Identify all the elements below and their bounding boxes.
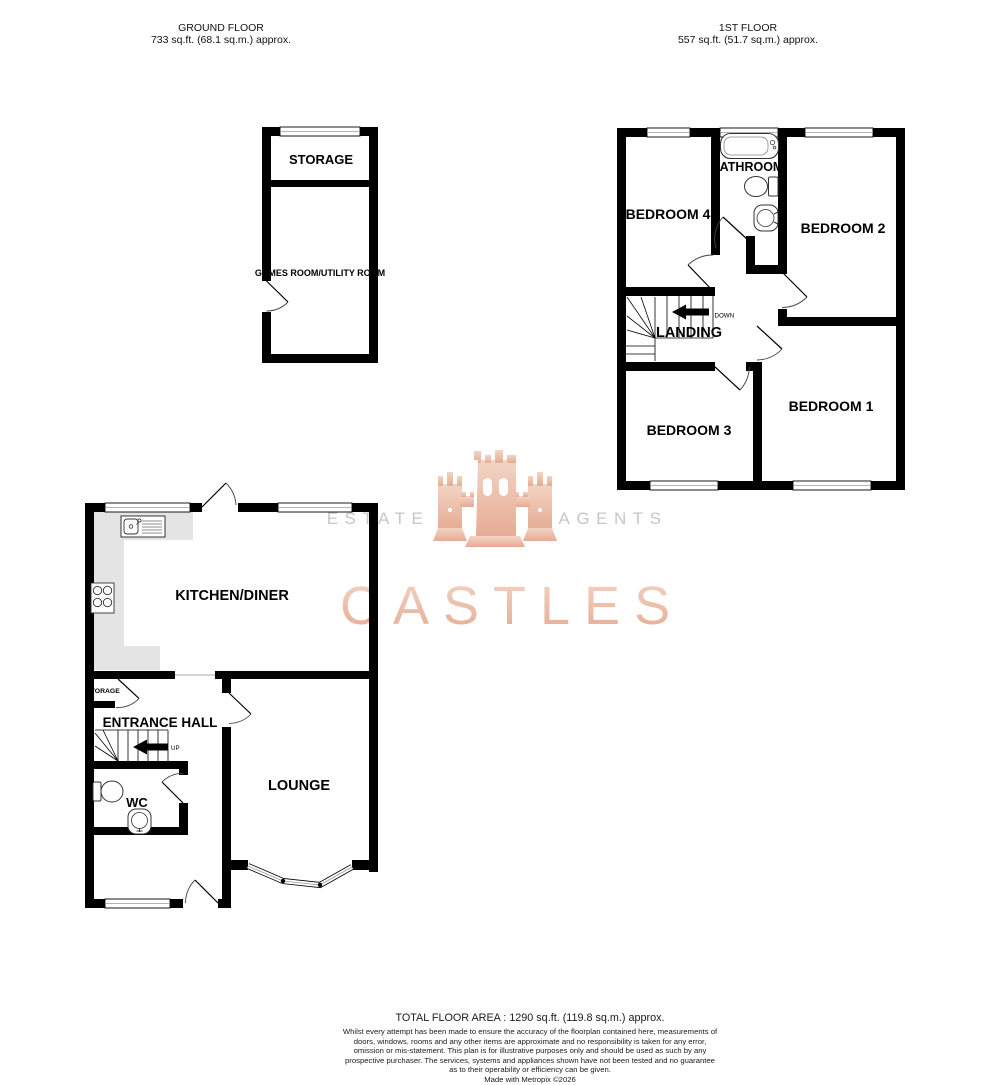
total-floor-area: TOTAL FLOOR AREA : 1290 sq.ft. (119.8 sq… — [330, 1012, 730, 1024]
bedroom1-door — [757, 326, 782, 360]
down-label: DOWN — [715, 313, 735, 320]
watermark-agents-text: AGENTS — [559, 509, 668, 528]
lounge-door — [229, 693, 251, 723]
entrance-hall-label: ENTRANCE HALL — [103, 715, 218, 730]
basin-icon-wc — [128, 809, 151, 834]
first-floor-plan: DOWN BEDROOM 4 BATHROOM BEDROOM 2 LANDIN… — [617, 128, 905, 490]
bedroom2-door — [782, 272, 807, 307]
toilet-icon-bathroom — [745, 177, 779, 197]
toilet-icon-wc — [93, 781, 123, 802]
bedroom3-label: BEDROOM 3 — [647, 422, 732, 438]
hall-storage-label: STORAGE — [86, 688, 120, 695]
landing-label: LANDING — [656, 325, 722, 341]
bedroom3-door — [714, 366, 749, 390]
games-room-label: GAMES ROOM/UTILITY ROOM — [255, 268, 385, 278]
bedroom4-door — [688, 255, 713, 291]
lounge-label: LOUNGE — [268, 778, 330, 794]
watermark: ESTATE AGENTS CASTLES — [327, 450, 684, 636]
disclaimer-text: Whilst every attempt has been made to en… — [341, 1027, 719, 1075]
outbuilding-door — [267, 281, 289, 311]
bedroom1-label: BEDROOM 1 — [789, 398, 874, 414]
up-label: UP — [171, 745, 180, 752]
kitchen-diner-label: KITCHEN/DINER — [175, 588, 289, 604]
castle-icon — [433, 450, 557, 547]
ground-floor-plan: UP KITCHEN/DINER — [85, 483, 378, 908]
bedroom2-label: BEDROOM 2 — [801, 220, 886, 236]
bay-window — [248, 866, 352, 887]
wc-door — [162, 773, 183, 803]
down-arrow-icon — [672, 305, 709, 320]
front-door — [185, 880, 218, 903]
footer: TOTAL FLOOR AREA : 1290 sq.ft. (119.8 sq… — [330, 1012, 730, 1085]
back-door — [202, 483, 236, 507]
storage-outbuilding-label: STORAGE — [289, 152, 353, 167]
watermark-brand-text: CASTLES — [340, 576, 684, 636]
kitchen-sink-icon — [121, 516, 165, 537]
floorplan-svg: ESTATE AGENTS CASTLES GAMES — [0, 0, 991, 1080]
bedroom4-label: BEDROOM 4 — [626, 206, 711, 222]
basin-icon-bathroom — [754, 205, 778, 231]
outbuilding-window — [280, 127, 360, 136]
floorplan-page: { "headers": { "ground_floor": { "title"… — [0, 0, 991, 1080]
bathroom-label: BATHROOM — [711, 160, 784, 174]
hob-icon — [91, 583, 114, 613]
outbuilding-plan: GAMES ROOM/UTILITY ROOM STORAGE — [255, 127, 385, 363]
wc-label: WC — [126, 795, 148, 810]
bathtub-icon — [721, 134, 779, 159]
